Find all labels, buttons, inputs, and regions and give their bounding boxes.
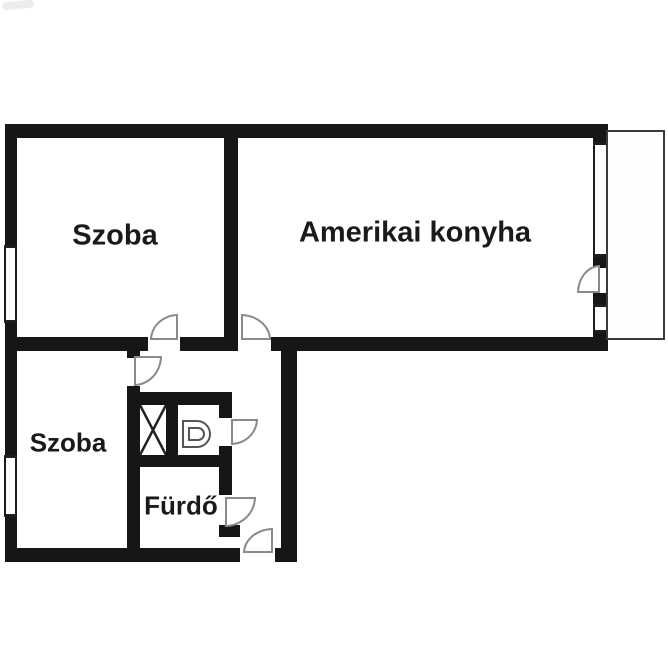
door-arc-bathroom	[225, 497, 256, 527]
wall-wardrobe-wc-divider	[166, 405, 178, 455]
wall-kitchen-bottom	[271, 337, 608, 351]
wall-left-upper	[5, 124, 17, 245]
door-arc-balcony	[577, 265, 600, 293]
room-label-lower-szoba: Szoba	[30, 428, 107, 459]
wall-bath-right-stub	[219, 525, 240, 537]
door-arc-lower-room	[134, 356, 162, 386]
door-arc-wc	[231, 419, 258, 445]
wall-bath-block-mid	[127, 455, 232, 467]
floorplan-canvas: Szoba Amerikai konyha Szoba Fürdő	[0, 0, 668, 668]
toilet-icon-inner	[188, 427, 205, 441]
door-arc-kitchen	[241, 314, 271, 340]
wall-bottom-right	[275, 548, 297, 562]
room-label-amerikai-konyha: Amerikai konyha	[299, 217, 531, 250]
wall-top	[5, 124, 608, 138]
wall-bath-right	[219, 446, 232, 495]
wardrobe-x-icon	[140, 405, 166, 455]
wall-hall-east	[281, 337, 297, 562]
wall-bath-block-top	[127, 392, 232, 405]
balcony-outline	[606, 130, 665, 340]
image-smudge-artifact	[2, 0, 35, 11]
room-label-furdo: Fürdő	[144, 491, 218, 522]
wall-bottom-left	[5, 548, 240, 562]
room-label-upper-szoba: Szoba	[72, 220, 157, 253]
window-icon-lower-room	[4, 455, 17, 517]
wall-lower-room-right	[127, 386, 140, 562]
window-icon-upper-room	[4, 245, 17, 323]
door-arc-entry	[243, 528, 273, 553]
door-arc-upper-room	[150, 314, 178, 340]
wall-mid-horizontal-center	[180, 337, 238, 351]
wall-wc-right-upper	[219, 405, 232, 418]
wall-partition-room-kitchen	[224, 124, 238, 351]
